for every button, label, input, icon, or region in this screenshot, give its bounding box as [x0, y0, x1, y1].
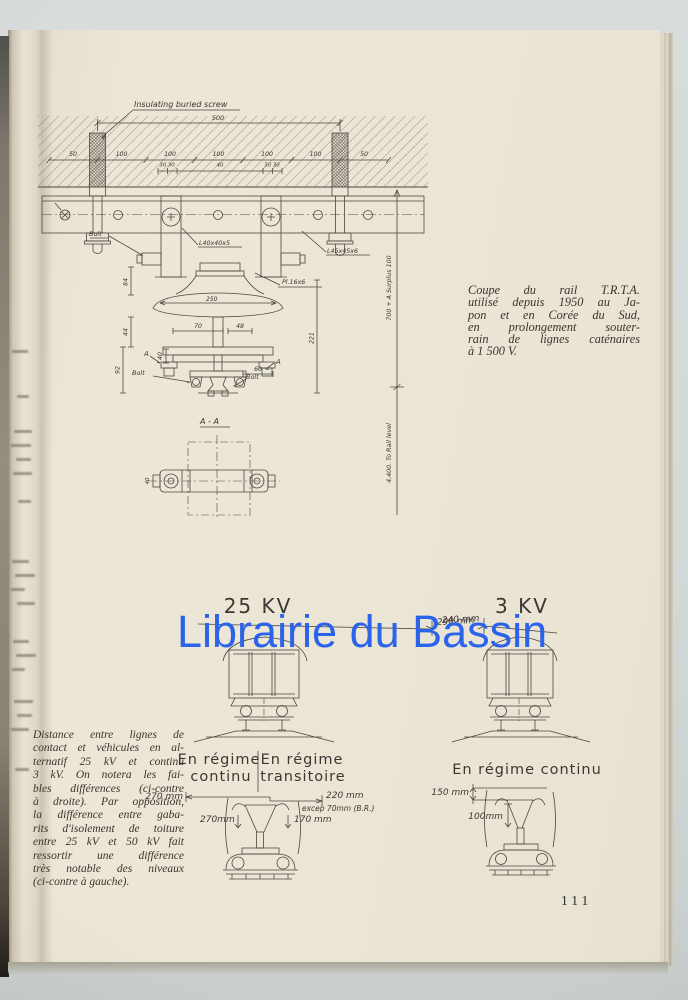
regime-continu-line1: En régime: [178, 752, 261, 768]
page-stack-fore-edge: [659, 33, 673, 966]
svg-text:100: 100: [213, 151, 225, 158]
svg-text:92: 92: [115, 366, 122, 374]
insulator-assembly: [153, 263, 283, 396]
pantograph-labels-3kv: En régime continu 150 mm 100mm: [431, 762, 601, 822]
regime-transitoire-line2: transitoire: [260, 769, 345, 785]
regime-transitoire-line1: En régime: [261, 752, 344, 768]
caption-rail: Coupe du rail T.R.T.A. utilisé depuis 19…: [468, 284, 640, 358]
dim-170: 170 mm: [294, 815, 332, 825]
caption-line: utilisé depuis 1950 au Ja-: [468, 296, 640, 308]
caption-line: 3 kV. On notera les fai-: [33, 769, 184, 782]
svg-text:40: 40: [145, 477, 151, 484]
svg-text:100: 100: [310, 151, 322, 158]
caption-line: la différence entre gaba-: [33, 809, 184, 822]
edge-text-fragment: [12, 668, 25, 671]
support-beam: [42, 196, 424, 233]
angle-beam-label: L45x45x6: [327, 248, 358, 255]
bolt-label-left: Bolt: [132, 369, 145, 377]
edge-text-fragment: [11, 728, 29, 731]
svg-text:30 30: 30 30: [159, 163, 175, 169]
caption-line: ressortir une différence: [33, 850, 184, 863]
edge-text-fragment: [15, 768, 29, 771]
page-number: 111: [561, 893, 592, 909]
svg-text:50: 50: [69, 151, 77, 158]
caption-line: rits d'isolement de toiture: [33, 823, 184, 836]
edge-text-fragment: [12, 350, 28, 353]
svg-text:48: 48: [236, 323, 244, 330]
dim-270-mid: 270mm: [200, 815, 235, 825]
rail-level-dimension: 4,400. To Rail level: [386, 423, 393, 483]
section-title: A - A: [199, 417, 219, 426]
dim-500: 500: [212, 114, 224, 122]
surplus-dimension: 700 + A Surplus 100: [386, 255, 393, 320]
edge-text-fragment: [13, 640, 29, 643]
caption-line: contact et véhicules en al-: [33, 742, 184, 755]
edge-text-fragment: [17, 602, 35, 605]
caption-line: (ci-contre à gauche).: [33, 876, 184, 889]
book-spine-edge: [0, 36, 9, 977]
svg-text:84: 84: [123, 278, 130, 286]
edge-text-fragment: [15, 574, 35, 577]
caption-line: à droite). Par opposition,: [33, 796, 184, 809]
pantograph-outline-3kv: [485, 790, 557, 875]
regime-continu-line2: continu: [190, 769, 251, 785]
caption-distances: Distance entre lignes de contact et véhi…: [33, 729, 184, 890]
svg-text:100: 100: [164, 151, 176, 158]
edge-text-fragment: [16, 458, 31, 461]
edge-text-fragment: [17, 714, 32, 717]
caption-line: bles différences (ci-contre: [33, 783, 184, 796]
dim-220: 220 mm: [326, 791, 364, 801]
caption-line: très notable des niveaux: [33, 863, 184, 876]
bolt-label-upper: Bolt: [89, 230, 102, 238]
dim-150: 150 mm: [431, 788, 469, 798]
caption-line: ternatif 25 kV et continu: [33, 756, 184, 769]
pantograph-outline-25kv: [223, 798, 301, 879]
edge-text-fragment: [17, 395, 29, 398]
section-marker-a-left: A: [143, 350, 149, 358]
pantograph-diagram-25kv: En régime continu En régime transitoire …: [150, 748, 412, 883]
caption-line: Distance entre lignes de: [33, 729, 184, 742]
pantograph-diagram-3kv: En régime continu 150 mm 100mm: [425, 752, 655, 882]
svg-text:221: 221: [309, 332, 316, 344]
section-marker-a-right: A: [275, 358, 281, 366]
bolt-label-right: Bolt: [246, 373, 259, 381]
bookseller-watermark: Librairie du Bassin: [177, 606, 547, 658]
edge-text-fragment: [11, 588, 25, 591]
svg-text:30 30: 30 30: [264, 163, 280, 169]
edge-text-fragment: [16, 654, 36, 657]
svg-text:50: 50: [360, 151, 368, 158]
dim-250: 250: [206, 296, 218, 303]
mounting-bracket: [137, 196, 305, 277]
svg-text:100: 100: [116, 151, 128, 158]
edge-text-fragment: [14, 700, 33, 703]
svg-text:70: 70: [194, 323, 202, 330]
plate-label: Pl.16x6: [282, 279, 305, 286]
edge-text-fragment: [11, 444, 31, 447]
book-photo-scene: Insulating buried screw 500 50 100 100 1…: [0, 0, 688, 1000]
svg-text:60: 60: [254, 366, 262, 373]
svg-text:44: 44: [123, 328, 130, 336]
dim-100: 100mm: [468, 812, 503, 822]
page-bottom-shadow: [8, 962, 668, 975]
screw-label: Insulating buried screw: [134, 100, 228, 109]
svg-text:40: 40: [217, 163, 224, 169]
dim-exception: excep 70mm (B.R.): [302, 804, 375, 813]
caption-line: entre 25 kV et 50 kV fait: [33, 836, 184, 849]
section-aa-view: [148, 427, 280, 517]
caption-line: à 1 500 V.: [468, 345, 640, 357]
rail-cross-section-drawing: Insulating buried screw 500 50 100 100 1…: [30, 95, 460, 520]
svg-text:40: 40: [157, 352, 164, 360]
angle-bracket-label: L40x40x5: [199, 240, 230, 247]
regime-continu-title: En régime continu: [452, 762, 602, 778]
svg-text:100: 100: [261, 151, 273, 158]
edge-text-fragment: [12, 560, 29, 563]
